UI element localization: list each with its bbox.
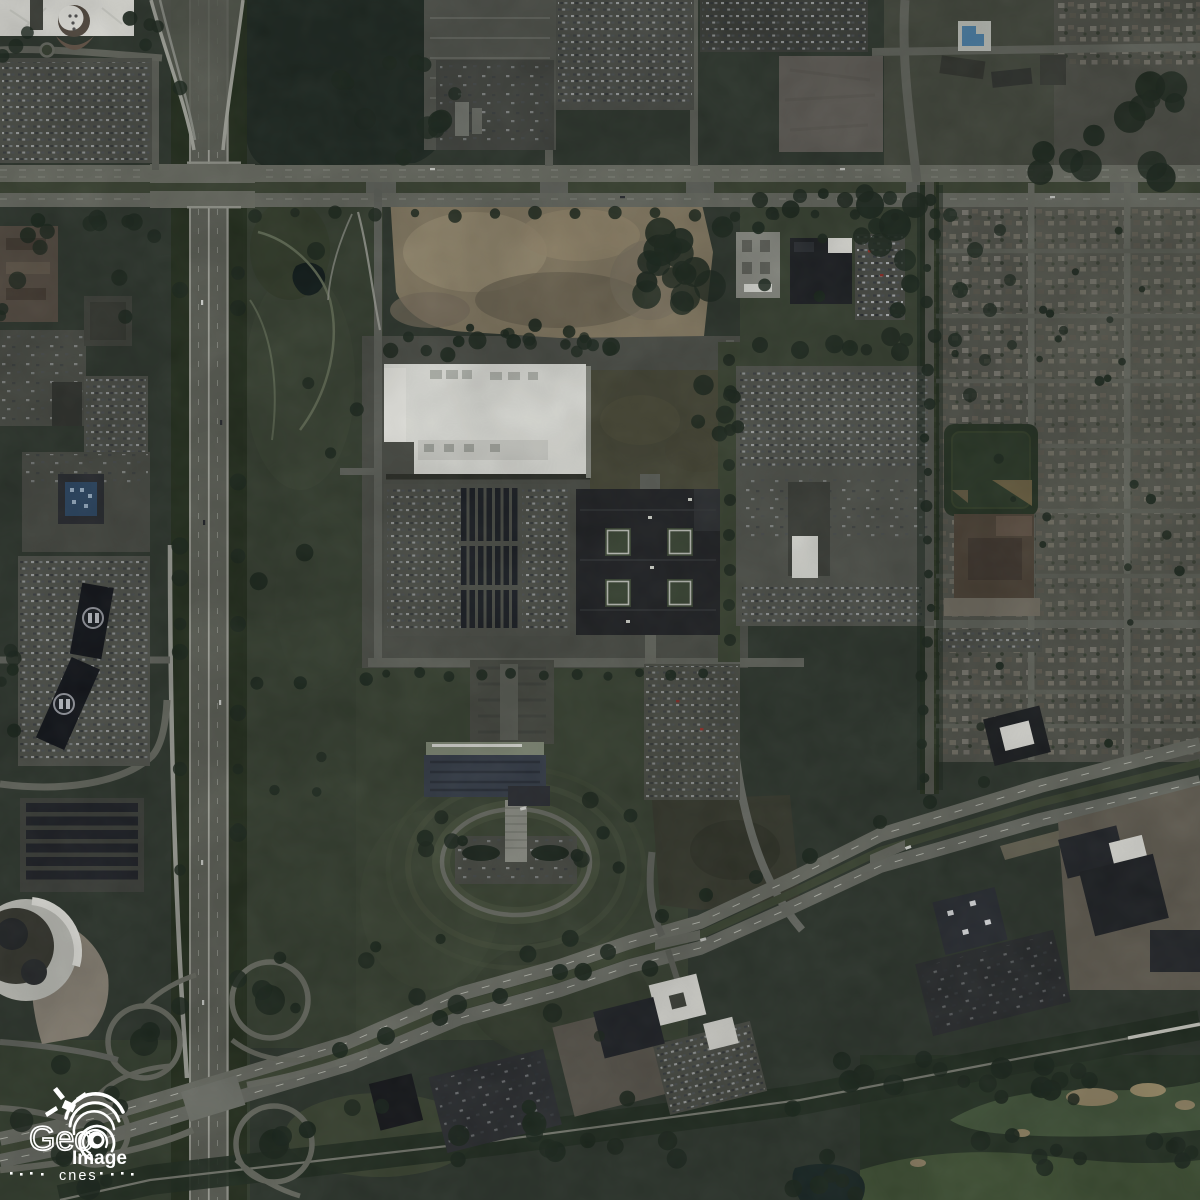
svg-text:Image: Image <box>72 1148 127 1169</box>
svg-text:cnes: cnes <box>59 1168 98 1184</box>
